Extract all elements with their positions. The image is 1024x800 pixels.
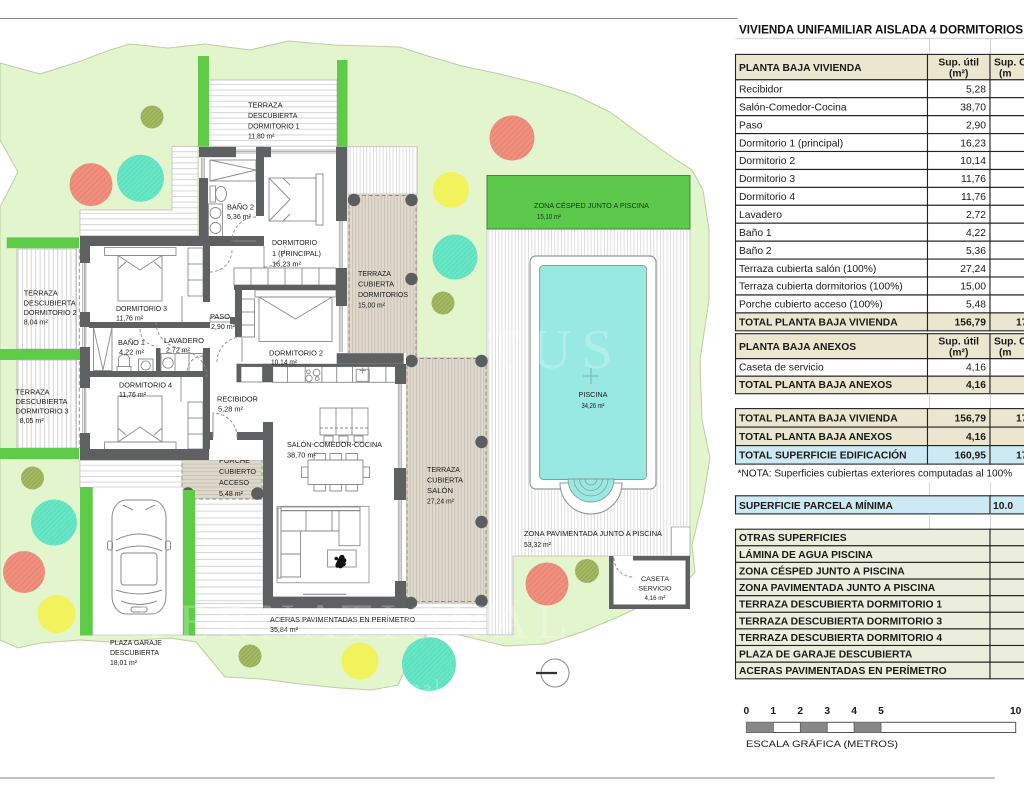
svg-text:TERRAZA: TERRAZA [248,101,283,110]
svg-text:PLANTA BAJA VIVIENDA: PLANTA BAJA VIVIENDA [739,63,862,74]
svg-text:ZONA CÉSPED JUNTO A PISCINA: ZONA CÉSPED JUNTO A PISCINA [739,564,905,577]
svg-text:CUBIERTA: CUBIERTA [427,476,463,485]
svg-text:15,00 m²: 15,00 m² [358,301,385,310]
svg-text:Salón-Comedor-Cocina: Salón-Comedor-Cocina [739,102,847,113]
svg-text:Dormitorio 2: Dormitorio 2 [739,156,795,167]
svg-text:Porche cubierto acceso (100%): Porche cubierto acceso (100%) [739,300,883,311]
svg-text:BAÑO 1: BAÑO 1 [118,338,145,347]
svg-text:1: 1 [770,706,776,717]
svg-text:CUBIERTA: CUBIERTA [358,280,394,289]
svg-text:38,70: 38,70 [960,102,986,113]
svg-text:4,16: 4,16 [966,363,986,374]
svg-text:*NOTA: Superficies cubiertas e: *NOTA: Superficies cubiertas exteriores … [738,469,1013,480]
svg-text:156,79: 156,79 [955,414,987,425]
svg-text:TERRAZA DESCUBIERTA DORMITORIO: TERRAZA DESCUBIERTA DORMITORIO 3 [739,616,942,627]
svg-text:TOTAL PLANTA BAJA VIVIENDA: TOTAL PLANTA BAJA VIVIENDA [739,414,898,425]
svg-text:2: 2 [797,706,803,717]
svg-text:5,48 m²: 5,48 m² [219,489,244,498]
svg-text:ACERAS PAVIMENTADAS EN PERÍMET: ACERAS PAVIMENTADAS EN PERÍMETRO [739,664,947,677]
svg-text:53,32 m²: 53,32 m² [524,540,551,549]
svg-text:17: 17 [1016,318,1024,329]
svg-text:Sup. útil: Sup. útil [938,337,979,348]
svg-text:Dormitorio 3: Dormitorio 3 [739,174,795,185]
svg-text:16,23: 16,23 [960,138,986,149]
svg-text:TOTAL PLANTA BAJA ANEXOS: TOTAL PLANTA BAJA ANEXOS [739,432,892,443]
svg-text:CUBIERTO: CUBIERTO [219,467,256,476]
svg-text:SALÓN-COMEDOR-COCINA: SALÓN-COMEDOR-COCINA [287,440,382,449]
svg-text:4,16 m²: 4,16 m² [645,595,667,602]
svg-text:27,24 m²: 27,24 m² [427,497,454,506]
svg-text:PISCINA: PISCINA [579,390,608,399]
svg-text:4,16: 4,16 [966,380,986,391]
svg-text:11,76 m²: 11,76 m² [116,314,144,323]
svg-text:Recibidor: Recibidor [739,85,783,96]
svg-text:4,22 m²: 4,22 m² [119,348,145,357]
svg-text:Baño 2: Baño 2 [739,246,772,257]
svg-text:TERRAZA: TERRAZA [24,289,58,298]
svg-text:CASETA: CASETA [641,576,669,583]
svg-text:2,90: 2,90 [966,120,986,131]
svg-text:TERRAZA DESCUBIERTA DORMITORIO: TERRAZA DESCUBIERTA DORMITORIO 1 [739,600,942,611]
svg-text:5,48: 5,48 [966,300,986,311]
svg-text:Caseta de servicio: Caseta de servicio [739,363,824,374]
svg-text:10.0: 10.0 [993,501,1013,512]
svg-text:(m: (m [999,69,1012,80]
svg-text:(m: (m [999,348,1012,359]
svg-text:DORMITORIO: DORMITORIO [272,238,317,247]
svg-text:SERVICIO: SERVICIO [639,586,672,593]
svg-text:SALÓN: SALÓN [427,486,453,495]
svg-text:1 (PRINCIPAL): 1 (PRINCIPAL) [272,249,321,258]
svg-text:4: 4 [851,706,857,717]
svg-text:TERRAZA: TERRAZA [16,388,50,397]
svg-text:DORMITORIO 3: DORMITORIO 3 [16,407,69,416]
svg-text:17: 17 [1016,414,1024,425]
svg-text:27,24: 27,24 [960,264,986,275]
svg-text:11,76: 11,76 [961,174,986,185]
svg-text:DORMITORIO 4: DORMITORIO 4 [119,381,172,390]
svg-text:5,36: 5,36 [966,246,986,257]
svg-text:Terraza cubierta dormitorios (: Terraza cubierta dormitorios (100%) [739,282,903,293]
svg-text:Terraza cubierta salón (100%): Terraza cubierta salón (100%) [739,264,876,275]
svg-text:ESCALA GRÁFICA (METROS): ESCALA GRÁFICA (METROS) [746,739,898,749]
svg-text:Dormitorio 1 (principal): Dormitorio 1 (principal) [739,138,843,149]
svg-text:2,72 m²: 2,72 m² [166,346,191,355]
svg-text:10,14 m²: 10,14 m² [271,358,297,367]
svg-text:tional.com: tional.com [380,675,493,700]
svg-text:(m²): (m²) [949,69,968,80]
svg-text:TERRAZA: TERRAZA [358,269,391,278]
svg-text:16,23 m²: 16,23 m² [272,260,302,269]
svg-text:Sup. C: Sup. C [994,58,1024,69]
svg-text:10,14: 10,14 [960,156,986,167]
svg-text:15,10 m²: 15,10 m² [537,212,561,221]
svg-text:Lavadero: Lavadero [739,210,782,221]
svg-text:17: 17 [1016,451,1024,462]
svg-text:PLAZA DE GARAJE DESCUBIERTA: PLAZA DE GARAJE DESCUBIERTA [739,650,913,661]
svg-text:Sup. C: Sup. C [994,337,1024,348]
svg-text:DESCUBIERTA: DESCUBIERTA [110,648,159,657]
svg-text:PASO: PASO [210,312,230,321]
svg-text:DESCUBIERTA: DESCUBIERTA [16,397,68,406]
svg-text:ACCESO: ACCESO [219,478,249,487]
svg-text:0: 0 [744,706,750,717]
svg-text:3: 3 [824,706,830,717]
svg-text:TOTAL SUPERFICIE EDIFICACIÓN: TOTAL SUPERFICIE EDIFICACIÓN [739,449,907,462]
svg-text:5: 5 [878,706,884,717]
svg-text:DESCUBIERTA: DESCUBIERTA [248,111,297,120]
svg-text:TUS: TUS [487,319,623,381]
svg-text:5,36 m²: 5,36 m² [227,212,252,221]
svg-text:SUPERFICIE PARCELA MÍNIMA: SUPERFICIE PARCELA MÍNIMA [739,499,893,512]
svg-text:LAVADERO: LAVADERO [164,336,204,345]
svg-text:11,80 m²: 11,80 m² [248,132,275,141]
svg-text:11,76: 11,76 [961,192,986,203]
svg-text:Sup. útil: Sup. útil [938,58,979,69]
svg-text:5,28 m²: 5,28 m² [218,405,244,414]
svg-text:Baño 1: Baño 1 [739,228,772,239]
svg-text:18,01 m²: 18,01 m² [110,658,137,667]
svg-text:DORMITORIO 1: DORMITORIO 1 [248,122,300,131]
svg-text:5,28: 5,28 [966,85,986,96]
svg-text:ZONA PAVIMENTADA JUNTO A PISCI: ZONA PAVIMENTADA JUNTO A PISCINA [524,529,662,538]
svg-text:RECIBIDOR: RECIBIDOR [217,395,258,404]
svg-text:Dormitorio 4: Dormitorio 4 [739,192,795,203]
svg-text:34,26 m²: 34,26 m² [582,401,605,410]
svg-text:38,70 m²: 38,70 m² [287,451,317,460]
svg-text:TOTAL PLANTA BAJA ANEXOS: TOTAL PLANTA BAJA ANEXOS [739,380,892,391]
svg-text:TERRAZA DESCUBIERTA DORMITORIO: TERRAZA DESCUBIERTA DORMITORIO 4 [739,633,942,644]
svg-text:Paso: Paso [739,120,763,131]
svg-text:4,16: 4,16 [966,432,986,443]
svg-text:156,79: 156,79 [955,318,987,329]
svg-text:8,04 m²: 8,04 m² [24,318,49,327]
svg-text:160,95: 160,95 [955,451,987,462]
svg-text:TERRAZA: TERRAZA [427,465,460,474]
svg-text:8,05 m²: 8,05 m² [20,416,45,425]
svg-text:4,22: 4,22 [966,228,986,239]
svg-text:TERNATIONAL: TERNATIONAL [140,593,575,649]
svg-text:PLANTA BAJA ANEXOS: PLANTA BAJA ANEXOS [739,342,856,353]
svg-text:TOTAL PLANTA BAJA VIVIENDA: TOTAL PLANTA BAJA VIVIENDA [739,318,898,329]
svg-text:ZONA PAVIMENTADA JUNTO A PISCI: ZONA PAVIMENTADA JUNTO A PISCINA [739,583,936,594]
svg-text:2,72: 2,72 [966,210,986,221]
svg-text:LÁMINA DE AGUA PISCINA: LÁMINA DE AGUA PISCINA [739,548,873,561]
svg-text:VIVIENDA UNIFAMILIAR AISLADA 4: VIVIENDA UNIFAMILIAR AISLADA 4 DORMITORI… [739,23,1023,37]
svg-text:(m²): (m²) [949,348,968,359]
svg-text:ZONA CÉSPED JUNTO A PISCINA: ZONA CÉSPED JUNTO A PISCINA [534,201,649,210]
svg-text:10: 10 [1010,706,1022,717]
svg-text:11,76 m²: 11,76 m² [119,390,147,399]
svg-text:DORMITORIO 2: DORMITORIO 2 [269,349,323,358]
svg-text:DORMITORIO 3: DORMITORIO 3 [116,304,167,313]
svg-text:DORMITORIO 2: DORMITORIO 2 [24,308,77,317]
svg-text:DORMITORIOS: DORMITORIOS [358,290,408,299]
svg-text:OTRAS SUPERFICIES: OTRAS SUPERFICIES [739,533,847,544]
svg-text:DESCUBIERTA: DESCUBIERTA [24,299,76,308]
svg-text:15,00: 15,00 [960,282,986,293]
svg-text:BAÑO 2: BAÑO 2 [227,203,254,212]
svg-text:2,90 m²: 2,90 m² [211,322,236,331]
